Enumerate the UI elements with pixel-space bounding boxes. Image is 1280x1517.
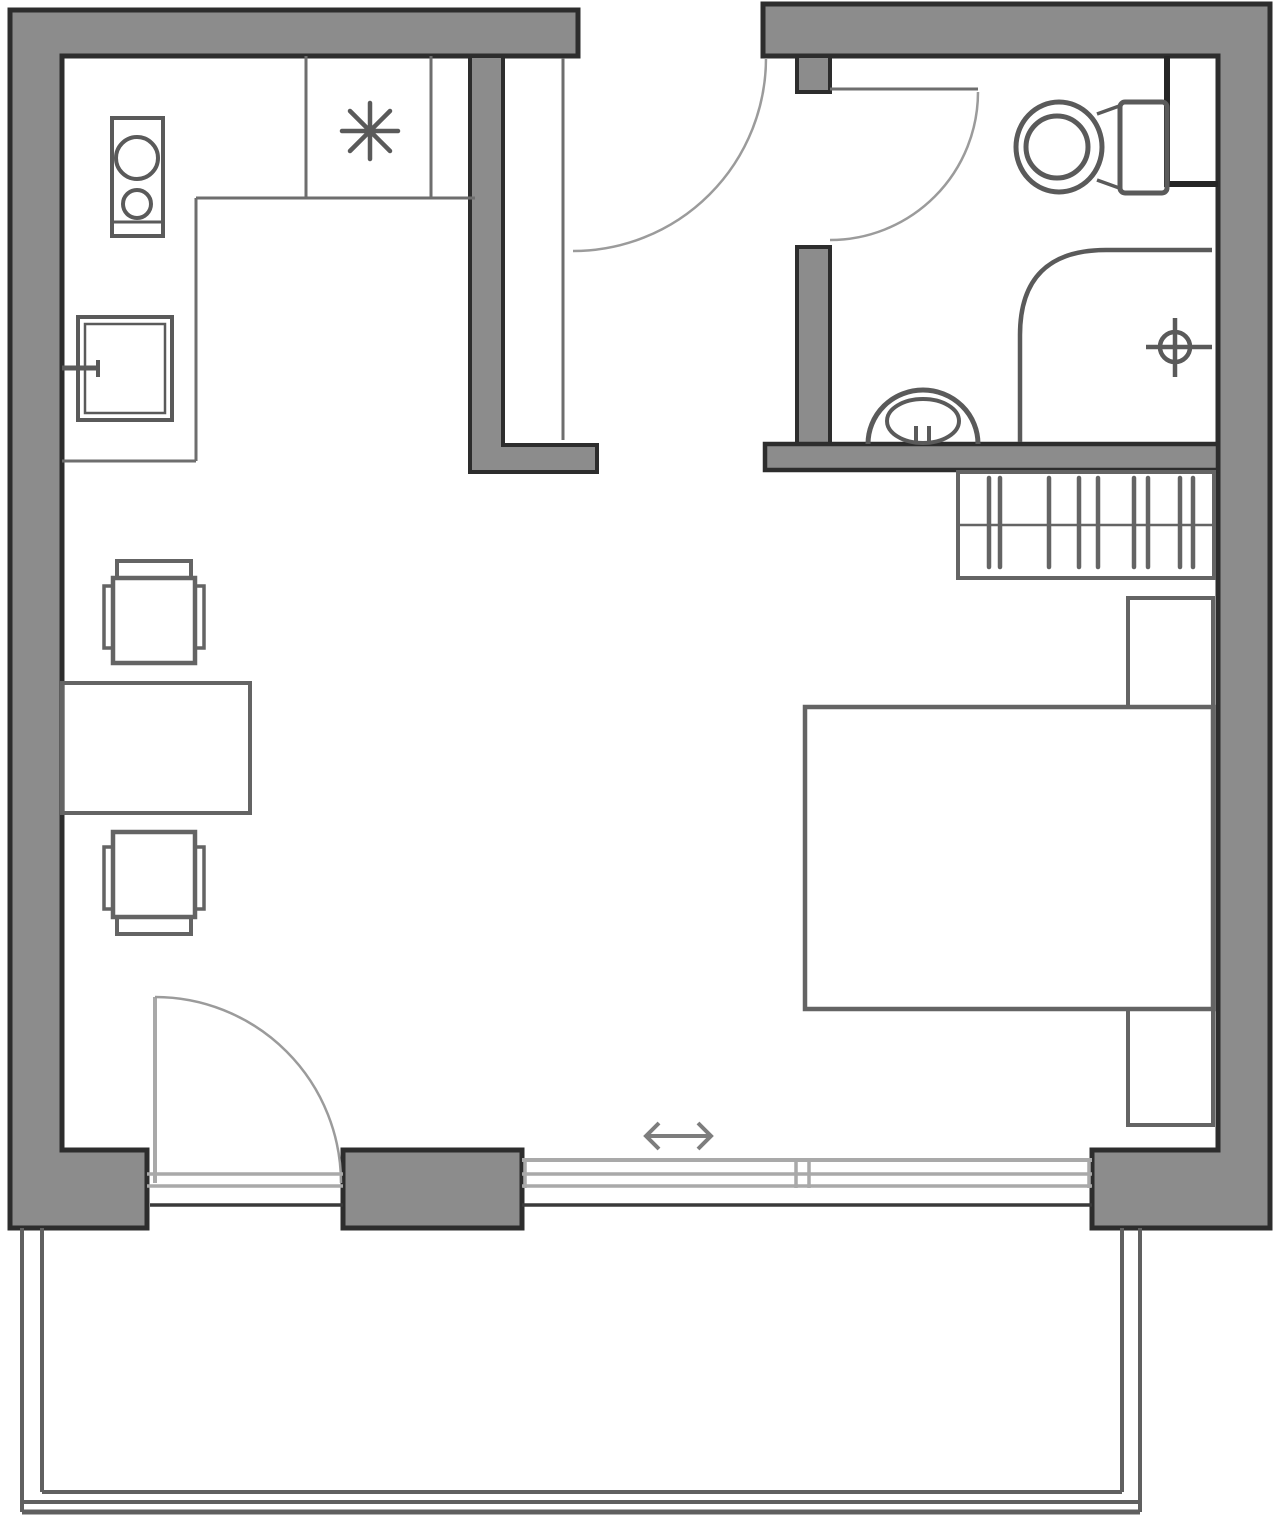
floor-plan <box>0 0 1280 1517</box>
utility-duct-outline <box>1167 56 1218 184</box>
stove-burner-large <box>116 137 158 179</box>
wall-right-outline <box>763 4 1270 1228</box>
wall-window-pier <box>343 1150 522 1228</box>
toilet-tank <box>1120 102 1167 193</box>
chair-top-seat <box>113 578 195 663</box>
kitchen-appliance-asterisk-symbol <box>342 103 398 159</box>
sliding-direction-arrow <box>646 1123 711 1149</box>
wall-bathroom-partition-upper <box>797 56 830 92</box>
wall-bathroom-partition-lower <box>797 247 830 445</box>
chair-bottom-back <box>117 917 191 934</box>
chair-bottom-arm-right <box>195 847 204 909</box>
bathroom-door-arc <box>830 92 978 240</box>
bathroom-sink-basin <box>887 399 959 443</box>
chair-top-arm-right <box>195 586 204 648</box>
balcony-door-arc <box>155 997 341 1183</box>
floor-plan-svg <box>0 0 1280 1517</box>
wall-bathroom-bottom <box>765 444 1218 470</box>
nightstand-bottom <box>1128 1009 1213 1125</box>
wall-kitchen-partition <box>470 56 597 472</box>
chair-bottom-arm-left <box>104 847 113 909</box>
toilet-bowl-inner <box>1026 116 1088 178</box>
chair-top-arm-left <box>104 586 113 648</box>
entry-door-arc <box>573 58 766 251</box>
stove-burner-small <box>123 190 151 218</box>
dining-table <box>62 683 250 813</box>
bed <box>805 707 1213 1009</box>
nightstand-top <box>1128 598 1213 707</box>
chair-bottom-seat <box>113 832 195 917</box>
chair-top-back <box>117 561 191 578</box>
